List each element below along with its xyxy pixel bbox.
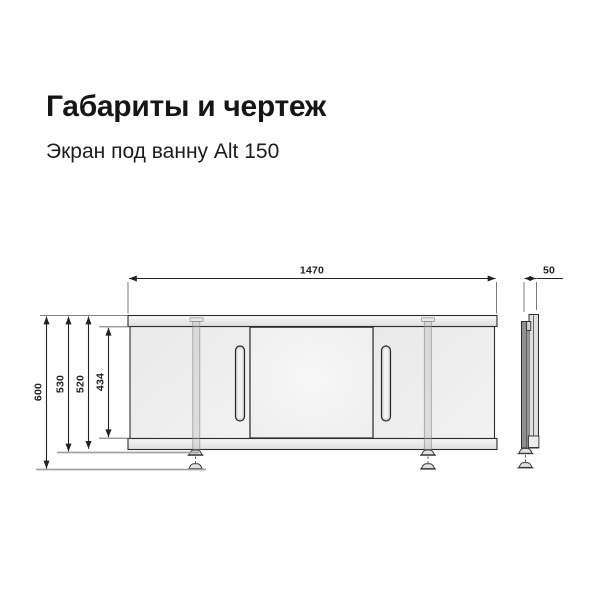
foot-retracted [519,448,532,453]
leg-cap [190,318,203,322]
dim-depth-label: 50 [543,265,555,277]
side-bottom-bracket [528,436,539,448]
leg-cap [422,318,435,322]
door-left-panel [130,327,250,439]
dim-height-with-feet: 530 [55,317,69,452]
dim-height-panel-label: 520 [75,375,87,393]
dim-height-overall-label: 600 [33,383,45,401]
door-center-panel [250,327,373,438]
dim-height-opening-label: 434 [95,373,107,391]
foot-extended [189,464,202,469]
technical-drawing: 1470 50 600 5 [0,0,600,600]
dim-width-label: 1470 [300,265,324,277]
top-rail [128,316,497,327]
foot-retracted [422,450,435,455]
front-view [128,316,497,470]
foot-extended [422,464,435,469]
dim-height-overall: 600 [33,317,47,469]
adjustable-foot-right [420,450,436,469]
door-handle-right [382,346,391,421]
leg-column [424,321,431,449]
door-right-panel [373,327,495,439]
page-root: Габариты и чертеж Экран под ванну Alt 15… [0,0,600,600]
side-top-bracket [527,322,531,331]
bottom-rail [128,439,497,450]
side-view [518,315,539,468]
dim-height-with-feet-label: 530 [55,375,67,393]
dim-height-opening: 434 [95,328,109,437]
dim-width: 1470 [128,265,497,314]
adjustable-foot-side [518,448,534,467]
door-handle-left [236,346,245,421]
foot-extended [519,463,532,468]
dim-height-panel: 520 [75,317,89,449]
side-panel-strip [522,322,528,449]
dim-depth: 50 [524,265,563,313]
leg-column [193,321,200,449]
